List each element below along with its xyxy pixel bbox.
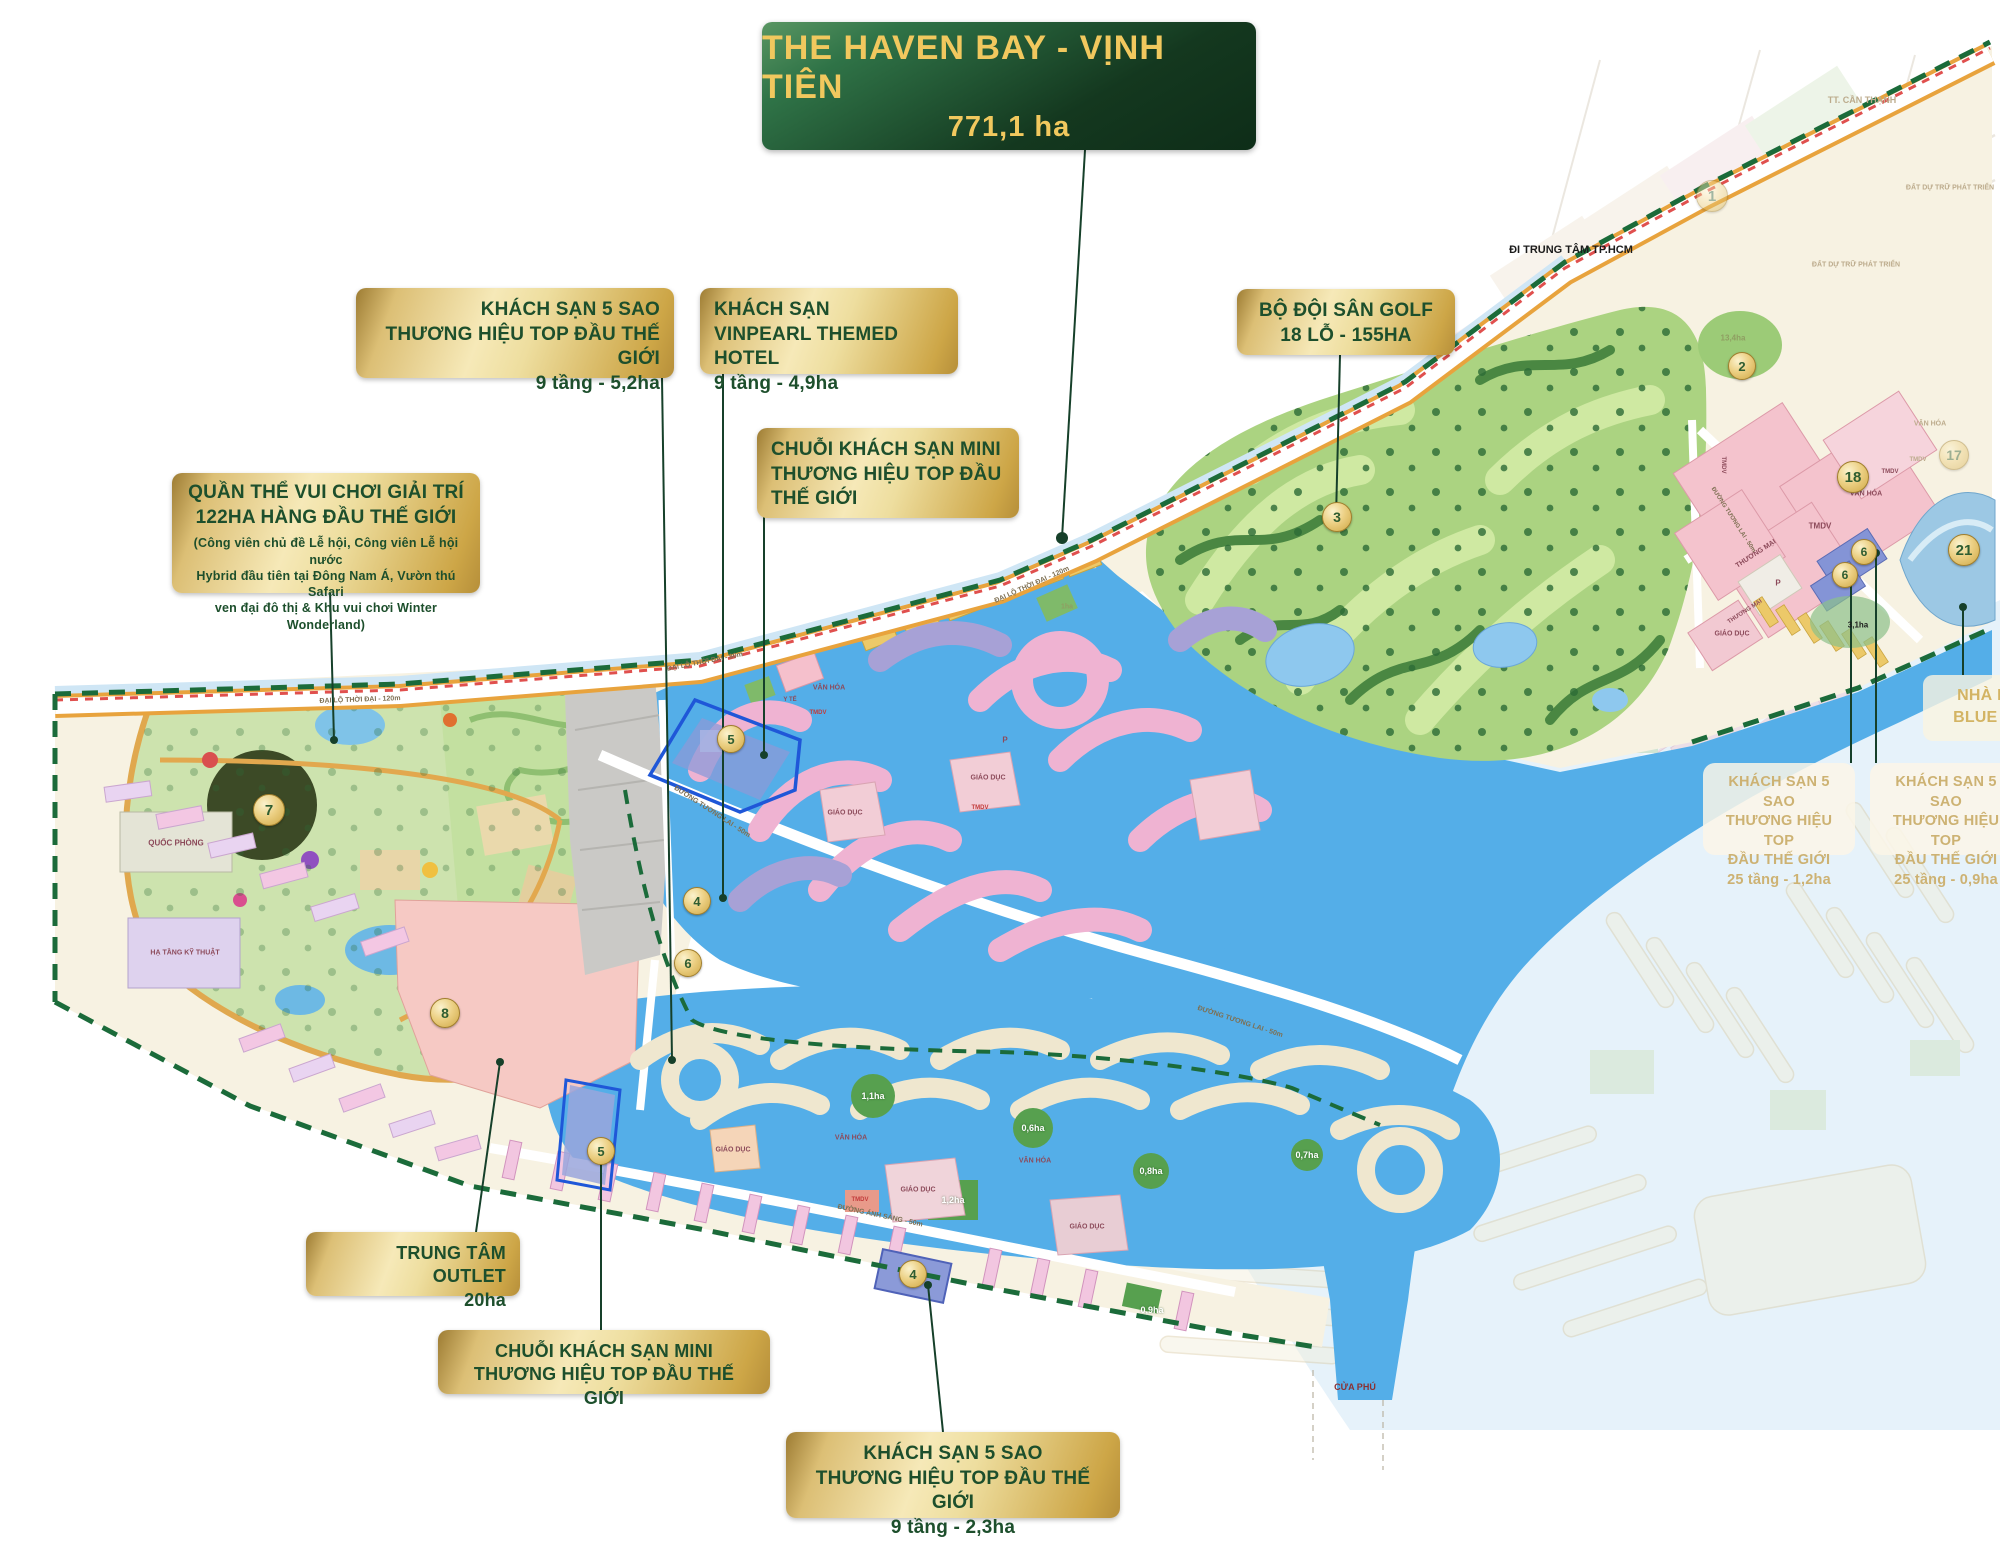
project-title-banner: THE HAVEN BAY - VỊNH TIÊN 771,1 ha xyxy=(762,22,1256,150)
map-label: GIÁO DỤC xyxy=(971,775,1006,782)
callout-line: ĐẦU THẾ GIỚI xyxy=(1717,851,1841,871)
callout-line: 9 tầng - 2,3ha xyxy=(800,1516,1106,1541)
callout-vinpearl-themed-hotel: KHÁCH SẠN VINPEARL THEMED HOTEL 9 tầng -… xyxy=(700,288,958,374)
map-label: GIÁO DỤC xyxy=(828,810,863,817)
map-label: TMDV xyxy=(1882,469,1899,475)
zone-badge-6: 6 xyxy=(1832,562,1858,588)
callout-line: THƯƠNG HIỆU TOP xyxy=(1717,812,1841,851)
callout-line: 18 LỖ - 155HA xyxy=(1251,324,1441,349)
map-label: VĂN HÓA xyxy=(835,1135,867,1142)
map-label: TT. CẦN THẠNH xyxy=(1828,95,1897,105)
map-label: GIÁO DỤC xyxy=(901,1187,936,1194)
callout-line: 9 tầng - 5,2ha xyxy=(370,372,660,397)
callout-blue-whale: NHÀ H BLUE V xyxy=(1923,675,2000,741)
callout-hotel-5star-2_3ha: KHÁCH SẠN 5 SAO THƯƠNG HIỆU TOP ĐẦU THẾ … xyxy=(786,1432,1120,1518)
map-label: 1ha xyxy=(1061,604,1073,611)
callout-line: CHUỖI KHÁCH SẠN MINI xyxy=(771,438,1005,463)
callout-golf-course: BỘ ĐỘI SÂN GOLF 18 LỖ - 155HA xyxy=(1237,289,1455,355)
callout-line: KHÁCH SẠN 5 SAO xyxy=(1717,773,1841,812)
callout-line: QUẦN THỂ VUI CHƠI GIẢI TRÍ xyxy=(186,481,466,506)
map-label: GIÁO DỤC xyxy=(716,1147,751,1154)
map-label: Y TẾ xyxy=(783,697,796,703)
callout-line: BỘ ĐỘI SÂN GOLF xyxy=(1251,299,1441,324)
map-label: VĂN HÓA xyxy=(1914,421,1946,428)
zone-badge-6: 6 xyxy=(674,949,702,977)
callout-line: THƯƠNG HIỆU TOP ĐẦU THẾ GIỚI xyxy=(370,323,660,372)
master-plan-poster: THE HAVEN BAY - VỊNH TIÊN 771,1 ha KHÁCH… xyxy=(0,0,2000,1554)
zone-badge-8: 8 xyxy=(430,998,460,1028)
zone-badge-6: 6 xyxy=(1851,539,1877,565)
map-label: 0,9ha xyxy=(1140,1305,1163,1315)
zone-badge-17: 17 xyxy=(1939,440,1969,470)
callout-line: 20ha xyxy=(320,1289,506,1312)
zone-badge-21: 21 xyxy=(1948,534,1980,566)
map-label: TMDV xyxy=(1809,522,1832,531)
callout-line: BLUE V xyxy=(1937,707,2000,729)
map-label: VĂN HÓA xyxy=(1019,1158,1051,1165)
callout-line: NHÀ H xyxy=(1937,685,2000,707)
callout-line: KHÁCH SẠN 5 SAO xyxy=(1884,773,2000,812)
zone-badge-4: 4 xyxy=(899,1260,927,1288)
map-label: TMDV xyxy=(1910,457,1927,463)
callout-line: THƯƠNG HIỆU TOP ĐẦU xyxy=(771,463,1005,488)
map-label: 0,8ha xyxy=(1139,1166,1162,1176)
project-area: 771,1 ha xyxy=(948,111,1070,144)
callout-mini-hotel-chain-top: CHUỖI KHÁCH SẠN MINI THƯƠNG HIỆU TOP ĐẦU… xyxy=(757,428,1019,518)
callout-entertainment-complex: QUẦN THỂ VUI CHƠI GIẢI TRÍ 122HA HÀNG ĐẦ… xyxy=(172,473,480,593)
map-label: HẠ TẦNG KỸ THUẬT xyxy=(150,950,219,957)
callout-line: KHÁCH SẠN 5 SAO xyxy=(800,1442,1106,1467)
callout-outlet-center: TRUNG TÂM OUTLET 20ha xyxy=(306,1232,520,1296)
callout-hotel-25f-0_9ha: KHÁCH SẠN 5 SAO THƯƠNG HIỆU TOP ĐẦU THẾ … xyxy=(1870,763,2000,855)
zone-badge-7: 7 xyxy=(253,794,285,826)
zone-badge-5: 5 xyxy=(587,1137,615,1165)
callout-line: KHÁCH SẠN xyxy=(714,298,944,323)
zone-badge-2: 2 xyxy=(1728,352,1756,380)
callout-subline: Hybrid đầu tiên tại Đông Nam Á, Vườn thú… xyxy=(186,568,466,601)
callout-line: 122HA HÀNG ĐẦU THẾ GIỚI xyxy=(186,506,466,531)
callout-hotel-25f-1_2ha: KHÁCH SẠN 5 SAO THƯƠNG HIỆU TOP ĐẦU THẾ … xyxy=(1703,763,1855,855)
map-label: TMDV xyxy=(972,805,989,811)
callout-subline: ven đại đô thị & Khu vui chơi Winter Won… xyxy=(186,600,466,633)
map-label: 0,6ha xyxy=(1021,1123,1044,1133)
map-label: TMDV xyxy=(810,710,827,716)
map-label: TMDV xyxy=(852,1197,869,1203)
callout-line: CHUỖI KHÁCH SẠN MINI xyxy=(452,1340,756,1363)
callout-line: KHÁCH SẠN 5 SAO xyxy=(370,298,660,323)
map-label: GIÁO DỤC xyxy=(1715,631,1750,638)
map-label: 3,1ha xyxy=(1848,621,1868,630)
callout-line: VINPEARL THEMED HOTEL xyxy=(714,323,944,372)
callout-line: THẾ GIỚI xyxy=(771,487,1005,512)
callout-line: 25 tầng - 1,2ha xyxy=(1717,871,1841,891)
map-label: 1,1ha xyxy=(861,1091,884,1101)
map-label: QUỐC PHÒNG xyxy=(148,839,204,848)
map-label: P xyxy=(1002,736,1007,745)
callout-hotel-5star-5_2ha: KHÁCH SẠN 5 SAO THƯƠNG HIỆU TOP ĐẦU THẾ … xyxy=(356,288,674,378)
callout-line: THƯƠNG HIỆU TOP ĐẦU THẾ GIỚI xyxy=(452,1363,756,1410)
callout-line: TRUNG TÂM OUTLET xyxy=(320,1242,506,1289)
map-label: ĐẤT DỰ TRỮ PHÁT TRIỂN xyxy=(1906,185,1994,192)
map-label: TMDV xyxy=(1720,457,1726,474)
zone-badge-18: 18 xyxy=(1837,461,1869,493)
zone-badge-4: 4 xyxy=(683,887,711,915)
map-label: P xyxy=(1775,579,1780,588)
callout-subline: (Công viên chủ đề Lễ hội, Công viên Lễ h… xyxy=(186,535,466,568)
callout-line: THƯƠNG HIỆU TOP xyxy=(1884,812,2000,851)
map-label: CỬA PHÚ xyxy=(1334,1382,1376,1392)
project-title: THE HAVEN BAY - VỊNH TIÊN xyxy=(762,29,1256,107)
callout-line: THƯƠNG HIỆU TOP ĐẦU THẾ GIỚI xyxy=(800,1467,1106,1516)
map-label: VĂN HÓA xyxy=(813,685,845,692)
callout-line: 9 tầng - 4,9ha xyxy=(714,372,944,397)
callout-line: ĐẦU THẾ GIỚI xyxy=(1884,851,2000,871)
zone-badge-3: 3 xyxy=(1322,502,1352,532)
map-label: 13,4ha xyxy=(1721,334,1746,343)
zone-badge-5: 5 xyxy=(717,725,745,753)
callout-line: 25 tầng - 0,9ha xyxy=(1884,871,2000,891)
map-label: ĐI TRUNG TÂM TP.HCM xyxy=(1509,244,1633,256)
map-label: GIÁO DỤC xyxy=(1070,1224,1105,1231)
zone-badge-1: 1 xyxy=(1696,180,1728,212)
map-label: 0,7ha xyxy=(1295,1150,1318,1160)
map-label: 1,2ha xyxy=(941,1195,964,1205)
callout-mini-hotel-chain-bottom: CHUỖI KHÁCH SẠN MINI THƯƠNG HIỆU TOP ĐẦU… xyxy=(438,1330,770,1394)
map-label: ĐẤT DỰ TRỮ PHÁT TRIỂN xyxy=(1812,262,1900,269)
